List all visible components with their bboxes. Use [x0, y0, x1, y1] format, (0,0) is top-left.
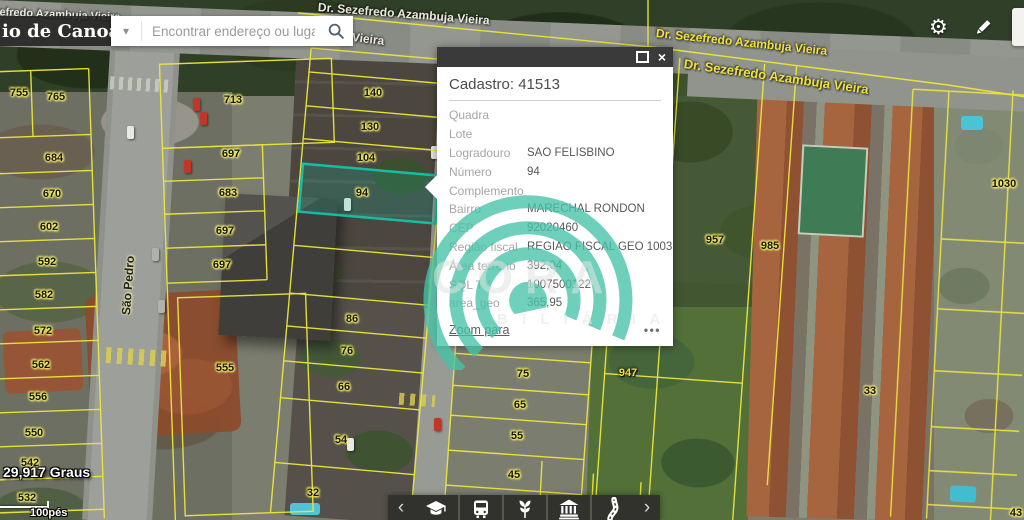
search-bar: ▾: [111, 16, 353, 46]
settings-gear-button[interactable]: ⚙: [929, 15, 948, 40]
scale-bar-label: 100pés: [30, 507, 67, 519]
popup-field-row: Lote: [449, 125, 661, 144]
field-label: Área terreno: [449, 259, 527, 273]
field-value: 365,95: [527, 297, 562, 309]
popup-field-row: Área terreno392,04: [449, 256, 661, 275]
toolbar-agriculture-button[interactable]: [502, 495, 546, 520]
field-label: Complemento: [449, 184, 527, 198]
coordinate-readout: 29,917 Graus: [3, 464, 90, 480]
selected-parcel-94[interactable]: [299, 164, 440, 224]
toolbar-institution-button[interactable]: [546, 495, 590, 520]
field-label: Quadra: [449, 108, 527, 122]
popup-titlebar: ×: [437, 47, 673, 67]
popup-separator: [449, 100, 661, 101]
carousel-next-button[interactable]: ›: [634, 495, 660, 520]
field-value: 94: [527, 166, 540, 178]
field-label: CEP: [449, 221, 527, 235]
field-value: 1007500122: [527, 279, 591, 291]
field-label: Região fiscal: [449, 240, 527, 254]
toolbar-education-button[interactable]: [414, 495, 458, 520]
search-dropdown-caret[interactable]: ▾: [111, 21, 142, 41]
collapsed-panel-edge[interactable]: [1012, 8, 1024, 46]
scale-bar: 100pés: [0, 498, 110, 520]
bus-icon: [469, 497, 493, 520]
map-viewport[interactable]: 7557656846706025925825725625565505425327…: [0, 0, 1024, 520]
plant-icon: [513, 497, 537, 520]
popup-body: Cadastro: 41513 Quadra Lote LogradouroSA…: [437, 67, 673, 346]
zoom-to-link[interactable]: Zoom para: [449, 323, 509, 337]
app-titlebar: io de Canoas: [0, 16, 111, 46]
field-label: Lote: [449, 127, 527, 141]
popup-field-row: Número94: [449, 162, 661, 181]
field-label: SQL TX: [449, 278, 527, 292]
field-value: 92020460: [527, 222, 578, 234]
toolbar-roads-button[interactable]: [590, 495, 634, 520]
popup-field-row: Região fiscalREGIAO FISCAL GEO 1003: [449, 238, 661, 257]
bank-icon: [557, 497, 581, 520]
graduation-cap-icon: [424, 497, 448, 520]
pencil-icon: [972, 16, 994, 38]
popup-title: Cadastro: 41513: [449, 74, 661, 93]
maximize-icon[interactable]: [636, 51, 649, 63]
popup-field-row: BairroMARECHAL RONDON: [449, 200, 661, 219]
popup-field-row: SQL TX1007500122: [449, 275, 661, 294]
close-icon[interactable]: ×: [658, 50, 666, 64]
field-label: Número: [449, 165, 527, 179]
search-icon: [326, 21, 346, 41]
carousel-prev-button[interactable]: ‹: [388, 495, 414, 520]
field-value: SAO FELISBINO: [527, 147, 615, 159]
toolbar-transport-button[interactable]: [458, 495, 502, 520]
popup-callout-arrow: [425, 175, 437, 199]
popup-field-row: Complemento: [449, 181, 661, 200]
field-label: Logradouro: [449, 146, 527, 160]
more-options-button[interactable]: •••: [644, 323, 661, 337]
popup-field-row: Quadra: [449, 106, 661, 125]
field-label: area_geo: [449, 296, 527, 310]
field-value: REGIAO FISCAL GEO 1003: [527, 241, 672, 253]
road-icon: [601, 497, 625, 520]
cadastro-popup: × Cadastro: 41513 Quadra Lote Logradouro…: [437, 47, 673, 346]
bottom-toolbar: ‹: [388, 495, 660, 520]
search-input[interactable]: [142, 24, 319, 39]
search-button[interactable]: [319, 16, 353, 46]
field-label: Bairro: [449, 202, 527, 216]
field-value: MARECHAL RONDON: [527, 203, 645, 215]
edit-pencil-button[interactable]: [972, 16, 994, 43]
popup-field-row: LogradouroSAO FELISBINO: [449, 144, 661, 163]
field-value: 392,04: [527, 260, 562, 272]
popup-field-row: CEP92020460: [449, 219, 661, 238]
gear-icon: ⚙: [929, 16, 948, 39]
popup-footer: Zoom para •••: [449, 323, 661, 337]
popup-field-row: area_geo365,95: [449, 294, 661, 313]
